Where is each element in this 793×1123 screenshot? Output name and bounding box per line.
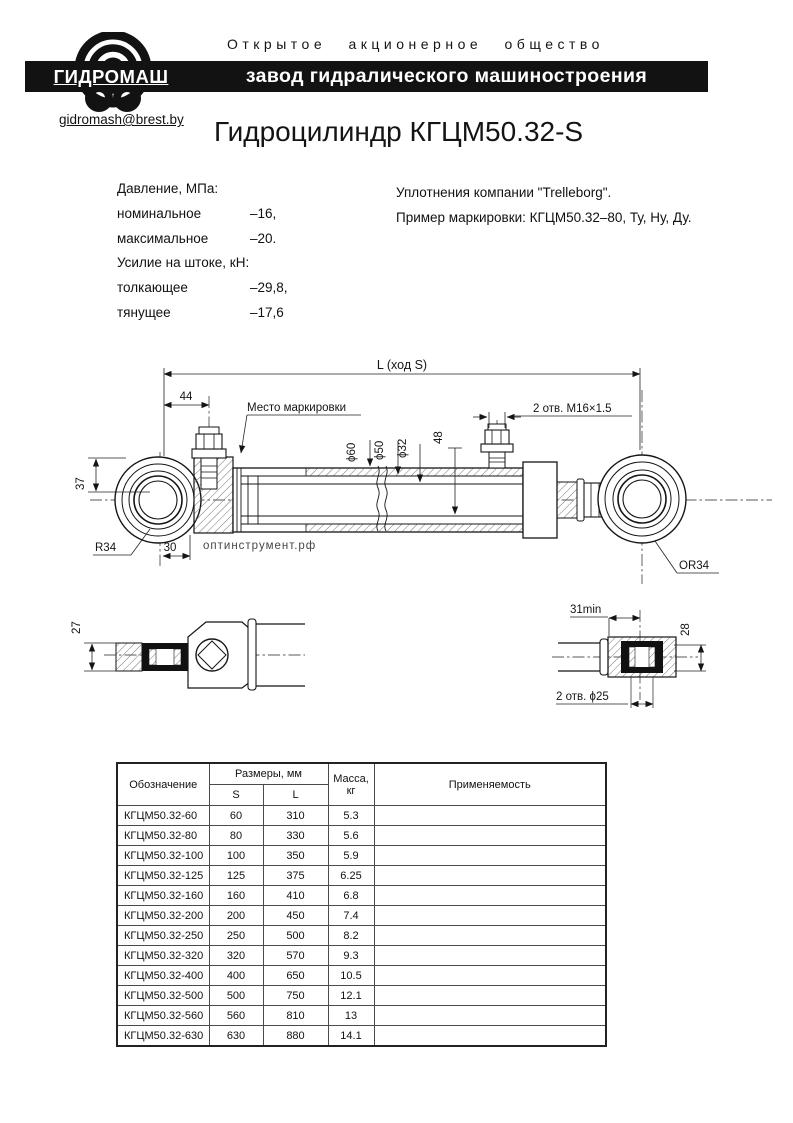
cell-application <box>374 946 606 966</box>
cell-l: 880 <box>263 1026 328 1047</box>
specs-right-block: Уплотнения компании "Trelleborg". Пример… <box>396 181 692 231</box>
dim-30-label: 30 <box>164 542 177 554</box>
spec-label: Давление, МПа: <box>117 181 250 206</box>
marking-spot-label: Место маркировки <box>247 402 346 414</box>
col-header-designation: Обозначение <box>117 763 209 806</box>
spec-label: тянущее <box>117 305 250 330</box>
table-row: КГЦМ50.32-2502505008.2 <box>117 926 606 946</box>
cell-designation: КГЦМ50.32-630 <box>117 1026 209 1047</box>
dia-50-label: ϕ50 <box>374 441 386 460</box>
table-row: КГЦМ50.32-63063088014.1 <box>117 1026 606 1047</box>
cell-l: 375 <box>263 866 328 886</box>
factory-name: завод гидралического машиностроения <box>185 61 708 92</box>
spec-value: –17,6 <box>250 305 284 330</box>
cell-mass: 12.1 <box>328 986 374 1006</box>
cell-application <box>374 866 606 886</box>
cell-designation: КГЦМ50.32-200 <box>117 906 209 926</box>
cell-l: 310 <box>263 806 328 826</box>
cell-designation: КГЦМ50.32-500 <box>117 986 209 1006</box>
cell-s: 400 <box>209 966 263 986</box>
cell-l: 350 <box>263 846 328 866</box>
spec-row: толкающее–29,8, <box>117 280 288 305</box>
cell-application <box>374 806 606 826</box>
cell-mass: 14.1 <box>328 1026 374 1047</box>
cell-l: 450 <box>263 906 328 926</box>
col-header-sizes: Размеры, мм <box>209 763 328 785</box>
table-row: КГЦМ50.32-80803305.6 <box>117 826 606 846</box>
cell-designation: КГЦМ50.32-100 <box>117 846 209 866</box>
cylinder-drawing: L (ход S) 44 37 30 Место маркировки 2 от… <box>0 350 793 725</box>
marking-example: Пример маркировки: КГЦМ50.32–80, Ту, Ну,… <box>396 206 692 231</box>
col-header-s: S <box>209 785 263 806</box>
detail-right-holes-label: 2 отв. ϕ25 <box>556 691 609 703</box>
spec-value: –29,8, <box>250 280 288 305</box>
watermark: оптинструмент.рф <box>203 540 316 552</box>
cell-s: 630 <box>209 1026 263 1047</box>
spec-row: тянущее–17,6 <box>117 305 288 330</box>
cell-mass: 5.9 <box>328 846 374 866</box>
cell-application <box>374 926 606 946</box>
spec-label: номинальное <box>117 206 250 231</box>
dim-48-label: 48 <box>433 431 445 444</box>
table-row: КГЦМ50.32-60603105.3 <box>117 806 606 826</box>
cell-application <box>374 1026 606 1047</box>
cell-s: 250 <box>209 926 263 946</box>
or34-label: OR34 <box>679 560 710 572</box>
cell-application <box>374 966 606 986</box>
table-row: КГЦМ50.32-56056081013 <box>117 1006 606 1026</box>
cell-l: 750 <box>263 986 328 1006</box>
dim-44-label: 44 <box>180 391 193 403</box>
cell-mass: 6.8 <box>328 886 374 906</box>
spec-label: толкающее <box>117 280 250 305</box>
cell-application <box>374 1006 606 1026</box>
cell-application <box>374 886 606 906</box>
col-header-mass: Масса,кг <box>328 763 374 806</box>
cell-s: 560 <box>209 1006 263 1026</box>
spec-row: номинальное–16, <box>117 206 288 231</box>
cell-mass: 5.6 <box>328 826 374 846</box>
ports-label: 2 отв. М16×1.5 <box>533 403 612 415</box>
cell-mass: 7.4 <box>328 906 374 926</box>
cell-s: 60 <box>209 806 263 826</box>
detail-right-dim-31-label: 31min <box>570 604 601 616</box>
cell-mass: 9.3 <box>328 946 374 966</box>
cell-mass: 13 <box>328 1006 374 1026</box>
dim-total-length-label: L (ход S) <box>377 358 427 372</box>
spec-row: Давление, МПа: <box>117 181 288 206</box>
cell-l: 410 <box>263 886 328 906</box>
dia-32-label: ϕ32 <box>397 439 409 458</box>
cell-s: 125 <box>209 866 263 886</box>
cell-mass: 6.25 <box>328 866 374 886</box>
cell-designation: КГЦМ50.32-60 <box>117 806 209 826</box>
spec-row: Усилие на штоке, кН: <box>117 255 288 280</box>
company-type-line: Открытое акционерное общество <box>227 36 604 52</box>
cell-s: 80 <box>209 826 263 846</box>
dia-60-label: ϕ60 <box>346 443 358 462</box>
spec-label: максимальное <box>117 231 250 256</box>
col-header-application: Применяемость <box>374 763 606 806</box>
col-header-l: L <box>263 785 328 806</box>
table-row: КГЦМ50.32-3203205709.3 <box>117 946 606 966</box>
spec-value: –20. <box>250 231 276 256</box>
cell-mass: 5.3 <box>328 806 374 826</box>
cell-l: 810 <box>263 1006 328 1026</box>
datasheet-page: Открытое акционерное общество завод гидр… <box>0 0 793 1123</box>
table-row: КГЦМ50.32-1601604106.8 <box>117 886 606 906</box>
table-row: КГЦМ50.32-50050075012.1 <box>117 986 606 1006</box>
r34-label: R34 <box>95 542 117 554</box>
cell-s: 320 <box>209 946 263 966</box>
cell-s: 160 <box>209 886 263 906</box>
table-row: КГЦМ50.32-40040065010.5 <box>117 966 606 986</box>
specs-left-block: Давление, МПа: номинальное–16, максималь… <box>117 181 288 330</box>
table-row: КГЦМ50.32-2002004507.4 <box>117 906 606 926</box>
detail-view-left <box>84 619 305 690</box>
dim-37-label: 37 <box>75 477 87 490</box>
cell-s: 100 <box>209 846 263 866</box>
cell-application <box>374 846 606 866</box>
cell-designation: КГЦМ50.32-160 <box>117 886 209 906</box>
cell-application <box>374 906 606 926</box>
email-link[interactable]: gidromash@brest.by <box>59 112 184 127</box>
spec-label: Усилие на штоке, кН: <box>117 255 250 280</box>
logo-text: ГИДРОМАШ <box>36 62 186 92</box>
detail-left-dim-27-label: 27 <box>71 621 83 634</box>
cell-l: 570 <box>263 946 328 966</box>
detail-right-dim-28-label: 28 <box>680 623 692 636</box>
cell-designation: КГЦМ50.32-80 <box>117 826 209 846</box>
table-row: КГЦМ50.32-1001003505.9 <box>117 846 606 866</box>
spec-value: –16, <box>250 206 276 231</box>
seals-note: Уплотнения компании "Trelleborg". <box>396 181 692 206</box>
cell-designation: КГЦМ50.32-320 <box>117 946 209 966</box>
cell-s: 200 <box>209 906 263 926</box>
mass-line2: кг <box>332 785 371 797</box>
cell-designation: КГЦМ50.32-250 <box>117 926 209 946</box>
cell-s: 500 <box>209 986 263 1006</box>
cell-application <box>374 986 606 1006</box>
sizes-table: Обозначение Размеры, мм Масса,кг Применя… <box>116 762 607 1047</box>
mass-line1: Масса, <box>332 773 371 785</box>
cell-l: 500 <box>263 926 328 946</box>
table-row: КГЦМ50.32-1251253756.25 <box>117 866 606 886</box>
cell-application <box>374 826 606 846</box>
cell-designation: КГЦМ50.32-560 <box>117 1006 209 1026</box>
cell-mass: 8.2 <box>328 926 374 946</box>
page-title: Гидроцилиндр КГЦМ50.32-S <box>214 116 583 148</box>
spec-row: максимальное–20. <box>117 231 288 256</box>
cell-designation: КГЦМ50.32-400 <box>117 966 209 986</box>
cell-mass: 10.5 <box>328 966 374 986</box>
cell-designation: КГЦМ50.32-125 <box>117 866 209 886</box>
cell-l: 330 <box>263 826 328 846</box>
cell-l: 650 <box>263 966 328 986</box>
